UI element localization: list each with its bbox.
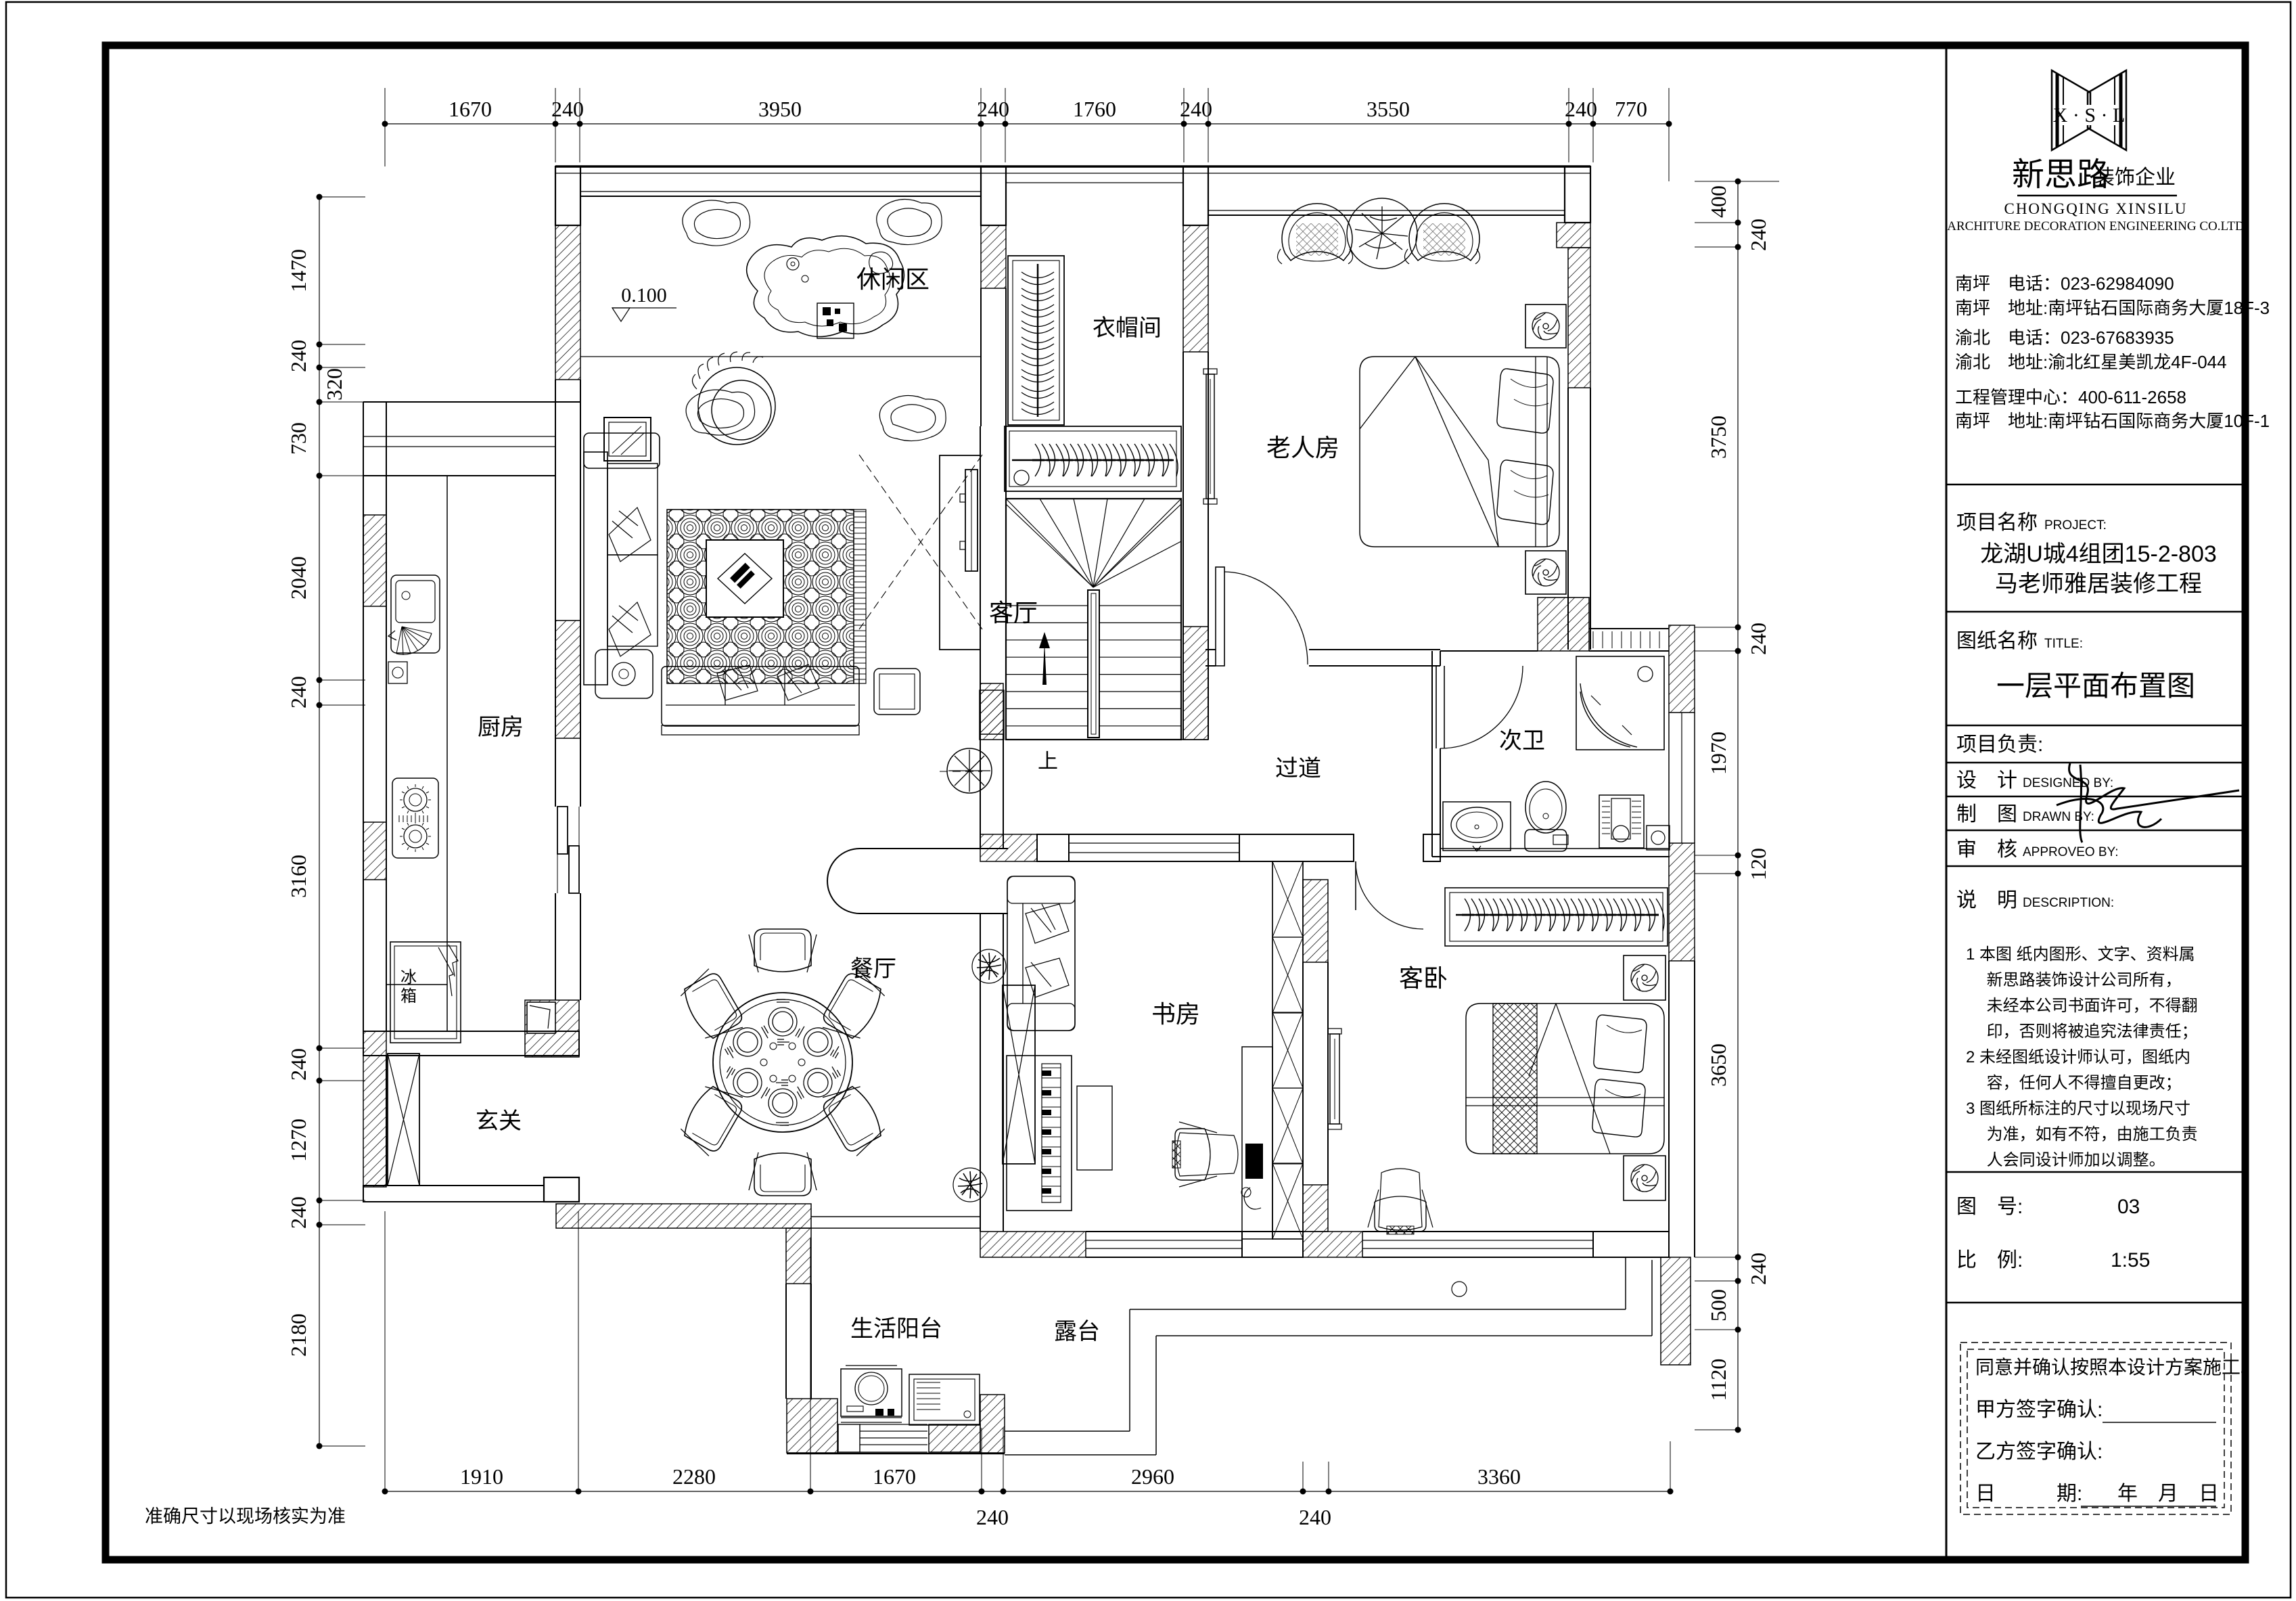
svg-text:240: 240: [1746, 1253, 1770, 1285]
svg-text:TITLE:: TITLE:: [2044, 637, 2083, 651]
svg-text:客卧: 客卧: [1399, 964, 1448, 992]
svg-text:730: 730: [286, 422, 311, 455]
svg-text:120: 120: [1746, 848, 1770, 880]
svg-text:南坪 地址:南坪钻石国际商务大厦10F-1: 南坪 地址:南坪钻石国际商务大厦10F-1: [1955, 411, 2270, 431]
svg-text:1470: 1470: [286, 249, 311, 292]
svg-text:一层平面布置图: 一层平面布置图: [1996, 670, 2195, 702]
svg-text:过道: 过道: [1275, 756, 1321, 782]
svg-text:露台: 露台: [1054, 1319, 1100, 1345]
svg-text:客厅: 客厅: [989, 599, 1038, 627]
svg-text:03: 03: [2117, 1196, 2140, 1218]
svg-text:1:55: 1:55: [2111, 1249, 2150, 1271]
svg-text:APPROVEO BY:: APPROVEO BY:: [2023, 845, 2119, 859]
svg-text:人会同设计师加以调整。: 人会同设计师加以调整。: [1966, 1151, 2165, 1169]
svg-text:冰: 冰: [400, 968, 417, 987]
svg-text:240: 240: [286, 1048, 311, 1081]
svg-text:240: 240: [976, 1505, 1009, 1529]
svg-text:770: 770: [1615, 97, 1647, 121]
svg-text:1 本图 纸内图形、文字、资料属: 1 本图 纸内图形、文字、资料属: [1966, 945, 2195, 964]
svg-text:玄关: 玄关: [476, 1108, 522, 1134]
svg-text:3160: 3160: [286, 855, 311, 898]
svg-text:南坪 电话：023-62984090: 南坪 电话：023-62984090: [1955, 273, 2174, 294]
svg-text:项目名称: 项目名称: [1956, 512, 2038, 534]
svg-text:240: 240: [1180, 97, 1212, 121]
svg-text:CHONGQING XINSILU: CHONGQING XINSILU: [2004, 200, 2187, 217]
svg-text:3360: 3360: [1477, 1464, 1521, 1489]
svg-text:老人房: 老人房: [1266, 434, 1339, 461]
svg-text:240: 240: [1299, 1505, 1331, 1529]
svg-text:ARCHITURE DECORATION ENGINEERI: ARCHITURE DECORATION ENGINEERING CO.LTD: [1947, 219, 2244, 233]
svg-text:制 图: 制 图: [1956, 803, 2017, 826]
svg-text:未经本公司书面许可，不得翻: 未经本公司书面许可，不得翻: [1966, 997, 2198, 1015]
svg-text:2180: 2180: [286, 1313, 311, 1357]
svg-text:240: 240: [286, 676, 311, 708]
svg-text:年 月 日: 年 月 日: [2117, 1483, 2219, 1505]
svg-text:3650: 3650: [1706, 1043, 1730, 1087]
svg-text:240: 240: [1746, 219, 1770, 251]
svg-text:马老师雅居装修工程: 马老师雅居装修工程: [1995, 571, 2202, 597]
svg-text:240: 240: [977, 97, 1009, 121]
svg-text:为准，如有不符，由施工负责: 为准，如有不符，由施工负责: [1966, 1125, 2198, 1144]
svg-text:3950: 3950: [758, 97, 802, 121]
svg-text:2 未经图纸设计师认可，图纸内: 2 未经图纸设计师认可，图纸内: [1966, 1048, 2190, 1066]
svg-text:书房: 书房: [1151, 1000, 1200, 1028]
svg-text:装饰企业: 装饰企业: [2094, 166, 2176, 189]
svg-text:图纸名称: 图纸名称: [1956, 630, 2038, 652]
svg-text:日 期:: 日 期:: [1975, 1483, 2082, 1505]
svg-text:400: 400: [1706, 185, 1730, 218]
svg-text:240: 240: [286, 1196, 311, 1229]
svg-text:设 计: 设 计: [1956, 769, 2017, 792]
svg-text:图 号:: 图 号:: [1956, 1196, 2023, 1218]
svg-text:1910: 1910: [460, 1464, 503, 1489]
svg-text:印，否则将被追究法律责任；: 印，否则将被追究法律责任；: [1966, 1022, 2198, 1041]
svg-text:320: 320: [322, 368, 346, 401]
svg-text:审 核: 审 核: [1956, 838, 2017, 861]
svg-text:项目负责:: 项目负责:: [1956, 734, 2043, 756]
svg-text:生活阳台: 生活阳台: [850, 1316, 942, 1342]
svg-text:DESIGNED BY:: DESIGNED BY:: [2023, 776, 2113, 790]
svg-text:渝北 地址:渝北红星美凯龙4F-044: 渝北 地址:渝北红星美凯龙4F-044: [1955, 352, 2227, 372]
svg-text:新思路装饰设计公司所有，: 新思路装饰设计公司所有，: [1966, 971, 2182, 989]
svg-text:工程管理中心：400-611-2658: 工程管理中心：400-611-2658: [1955, 387, 2186, 407]
svg-text:PROJECT:: PROJECT:: [2044, 518, 2107, 533]
svg-text:1120: 1120: [1706, 1359, 1730, 1401]
svg-text:同意并确认按照本设计方案施工。: 同意并确认按照本设计方案施工。: [1975, 1357, 2259, 1378]
svg-text:渝北 电话：023-67683935: 渝北 电话：023-67683935: [1955, 328, 2174, 348]
svg-text:3550: 3550: [1367, 97, 1410, 121]
svg-text:500: 500: [1706, 1289, 1730, 1322]
svg-text:3 图纸所标注的尺寸以现场尺寸: 3 图纸所标注的尺寸以现场尺寸: [1966, 1100, 2190, 1118]
svg-text:240: 240: [286, 340, 311, 372]
svg-text:DESCRIPTION:: DESCRIPTION:: [2023, 896, 2114, 910]
svg-text:DRAWN BY:: DRAWN BY:: [2023, 810, 2094, 824]
svg-text:0.100: 0.100: [621, 284, 667, 307]
svg-text:箱: 箱: [400, 987, 417, 1006]
svg-text:餐厅: 餐厅: [850, 956, 896, 982]
svg-text:1670: 1670: [449, 97, 492, 121]
svg-text:甲方签字确认:: 甲方签字确认:: [1975, 1399, 2103, 1421]
svg-text:240: 240: [1746, 623, 1770, 655]
svg-text:休闲区: 休闲区: [856, 265, 929, 293]
svg-text:1970: 1970: [1706, 731, 1730, 775]
svg-text:上: 上: [1038, 750, 1058, 773]
svg-text:1760: 1760: [1073, 97, 1116, 121]
svg-text:240: 240: [1565, 97, 1597, 121]
svg-text:准确尺寸以现场核实为准: 准确尺寸以现场核实为准: [145, 1506, 346, 1527]
svg-text:龙湖U城4组团15-2-803: 龙湖U城4组团15-2-803: [1980, 541, 2217, 567]
svg-text:乙方签字确认:: 乙方签字确认:: [1975, 1441, 2103, 1463]
svg-text:240: 240: [551, 97, 584, 121]
svg-text:次卫: 次卫: [1499, 728, 1545, 754]
svg-text:2040: 2040: [286, 556, 311, 600]
svg-text:3750: 3750: [1706, 415, 1730, 459]
svg-text:容，任何人不得擅自更改；: 容，任何人不得擅自更改；: [1966, 1074, 2182, 1092]
svg-text:南坪 地址:南坪钻石国际商务大厦18F-3: 南坪 地址:南坪钻石国际商务大厦18F-3: [1955, 298, 2270, 318]
svg-text:1670: 1670: [873, 1464, 916, 1489]
svg-text:厨房: 厨房: [478, 715, 524, 740]
svg-text:比 例:: 比 例:: [1956, 1249, 2023, 1271]
svg-text:衣帽间: 衣帽间: [1093, 315, 1162, 341]
svg-text:2960: 2960: [1131, 1464, 1174, 1489]
svg-text:1270: 1270: [286, 1119, 311, 1162]
svg-text:说 明: 说 明: [1956, 889, 2017, 911]
svg-text:X · S · L: X · S · L: [2053, 104, 2126, 127]
svg-text:2280: 2280: [672, 1464, 716, 1489]
